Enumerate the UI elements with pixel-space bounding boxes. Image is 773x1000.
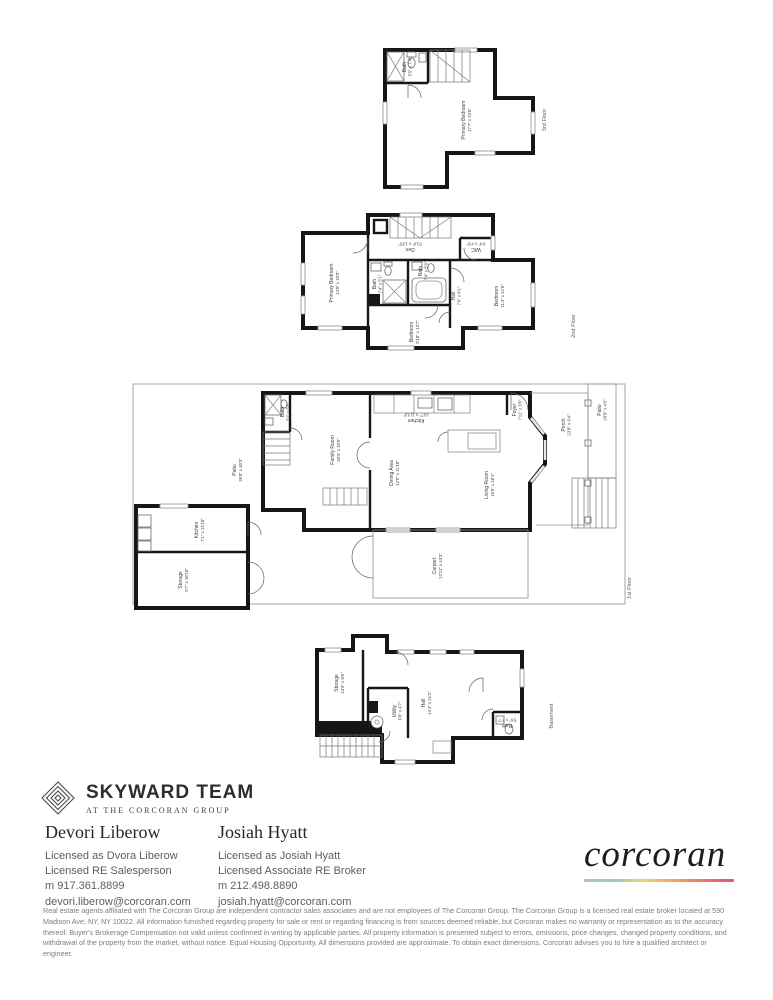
- toilet-icon: [428, 264, 434, 273]
- floor-plan-basement: Storage 13'9" x 8'6" Utility 6'8" x 4'7"…: [310, 631, 565, 781]
- room-label-patio-left: Patio 39'8" x 40'3": [232, 458, 243, 482]
- stairs-icon: [320, 735, 382, 757]
- room-dims: 7'6" x 8'1": [457, 286, 462, 305]
- room-dims: 20'3" x 10'9": [336, 438, 341, 462]
- agent-phone: m 917.361.8899: [45, 879, 191, 894]
- room-label-storage-1st: Storage 9'7" x 18'10": [178, 568, 189, 592]
- walls-basement: [317, 636, 522, 762]
- bathtub-icon: [412, 278, 446, 302]
- water-heater-icon: [371, 716, 383, 728]
- room-dims: 5'5" x 7'4": [408, 57, 413, 76]
- room-dims: 12'11" x 43'3": [438, 553, 443, 579]
- room-label-family-room: Family Room 20'3" x 10'9": [330, 435, 341, 464]
- room-dims: 9'7" x 18'10": [184, 568, 189, 592]
- floor-plan-flyer-page: Primary Bedroom 17'7" x 23'0" Bath 5'5" …: [0, 0, 773, 1000]
- room-dims: 7'4" x 5'1": [378, 274, 383, 293]
- floor-plan-2nd-floor: Primary Bedroom 14'6" x 10'9" Den 5'10" …: [288, 208, 583, 363]
- floor-plan-1st-floor: Patio 39'8" x 40'3" Kitchen 7'1" x 14'10…: [126, 370, 641, 620]
- agent-licensed-as: Licensed as Dvora Liberow: [45, 849, 191, 864]
- room-dims: 11'4" x 12'6": [500, 284, 505, 308]
- room-dims: 14'4" x 21'2": [427, 691, 432, 715]
- svg-text:Basement: Basement: [549, 703, 555, 729]
- floor-label-basement: Basement: [549, 703, 555, 729]
- room-label-porch: Porch 23'8" x 6'4": [561, 414, 572, 436]
- room-label-dining-area: Dining Area 12'9" x 11'10": [389, 460, 400, 486]
- room-dims: 7'1" x 14'10": [200, 518, 205, 542]
- sink-icon: [419, 53, 426, 62]
- sink-icon: [418, 398, 432, 408]
- room-label-living-room: Living Room 15'5" x 18'1": [484, 471, 495, 499]
- sink-icon: [265, 418, 273, 425]
- room-label-patio-right: Patio 26'8" x 4'9": [597, 399, 608, 421]
- room-dims: 23'8" x 6'4": [567, 414, 572, 436]
- toilet-icon: [385, 267, 391, 276]
- room-dims: 9'10" x 13'7": [415, 320, 420, 344]
- room-dims: 6'8" x 4'7": [398, 701, 403, 720]
- agent-title: Licensed RE Salesperson: [45, 864, 191, 879]
- corcoran-logo: corcoran: [584, 836, 736, 882]
- room-dims: 7'4" x 5'9": [424, 261, 429, 280]
- agent-card-josiah-hyatt: Josiah Hyatt Licensed as Josiah Hyatt Li…: [218, 822, 366, 910]
- shower-icon: [265, 395, 281, 415]
- svg-text:3rd Floor: 3rd Floor: [542, 109, 548, 132]
- skyward-team-logo: SKYWARD TEAM AT THE CORCORAN GROUP: [40, 780, 254, 816]
- floor-plan-3rd-floor: Primary Bedroom 17'7" x 23'0" Bath 5'5" …: [375, 40, 555, 195]
- room-dims: 5'6" x 7'7": [497, 718, 516, 723]
- corcoran-gradient-bar: [584, 879, 734, 882]
- agent-card-devori-liberow: Devori Liberow Licensed as Dvora Liberow…: [45, 822, 191, 910]
- room-dims: 13'9" x 8'6": [340, 672, 345, 694]
- team-tagline: AT THE CORCORAN GROUP: [86, 806, 254, 815]
- room-dims: 7'11" x 3'6": [518, 399, 523, 420]
- room-label-storage-basement: Storage 13'9" x 8'6": [334, 672, 345, 694]
- room-label-bedroom-right: Bedroom 11'4" x 12'6": [494, 284, 505, 308]
- room-dims: 6'4" x 4'9": [466, 242, 485, 247]
- svg-text:1st Floor: 1st Floor: [627, 577, 633, 599]
- room-dims: 5'10" x 13'5": [398, 242, 422, 247]
- room-dims: 12'9" x 11'10": [395, 460, 400, 486]
- room-dims: 10'7" x 11'10": [403, 413, 429, 418]
- agent-phone: m 212.498.8890: [218, 879, 366, 894]
- floor-label-1st: 1st Floor: [627, 577, 633, 599]
- svg-text:2nd Floor: 2nd Floor: [571, 314, 577, 338]
- agent-title: Licensed Associate RE Broker: [218, 864, 366, 879]
- shower-icon: [383, 280, 406, 303]
- room-dims: 3'1" x 6'8": [286, 402, 291, 421]
- agent-name: Josiah Hyatt: [218, 822, 366, 843]
- room-label-carport: Carport 12'11" x 43'3": [432, 553, 443, 579]
- room-dims: 14'6" x 10'9": [335, 271, 340, 295]
- skyward-diamond-icon: [40, 780, 76, 816]
- stove-icon: [438, 398, 452, 410]
- room-dims: 17'7" x 23'0": [467, 108, 472, 132]
- room-dims: 15'5" x 18'1": [490, 473, 495, 497]
- exterior-stairs-icon: [572, 478, 616, 528]
- room-dims: 26'8" x 4'9": [603, 399, 608, 421]
- floor-label-2nd: 2nd Floor: [571, 314, 577, 338]
- corcoran-wordmark: corcoran: [584, 836, 736, 873]
- room-label-bedroom-bottom: Bedroom 9'10" x 13'7": [409, 320, 420, 344]
- patio-right-outline: [588, 384, 616, 478]
- room-dims: 39'8" x 40'3": [238, 458, 243, 482]
- legal-disclaimer: Real estate agents affiliated with The C…: [43, 906, 737, 960]
- agent-licensed-as: Licensed as Josiah Hyatt: [218, 849, 366, 864]
- team-name: SKYWARD TEAM: [86, 782, 254, 804]
- floor-label-3rd: 3rd Floor: [542, 109, 548, 132]
- agent-name: Devori Liberow: [45, 822, 191, 843]
